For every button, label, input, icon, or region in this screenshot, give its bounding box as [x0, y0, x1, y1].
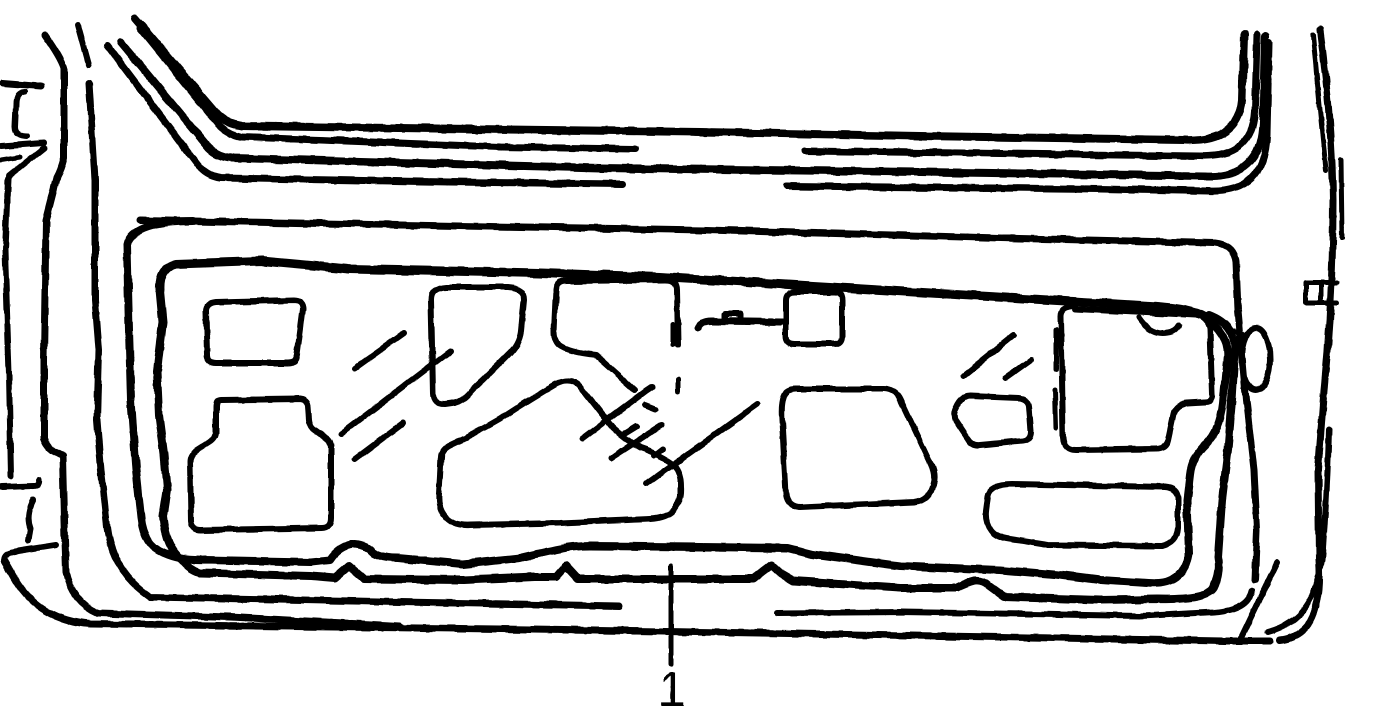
svg-text:1: 1	[658, 663, 685, 717]
